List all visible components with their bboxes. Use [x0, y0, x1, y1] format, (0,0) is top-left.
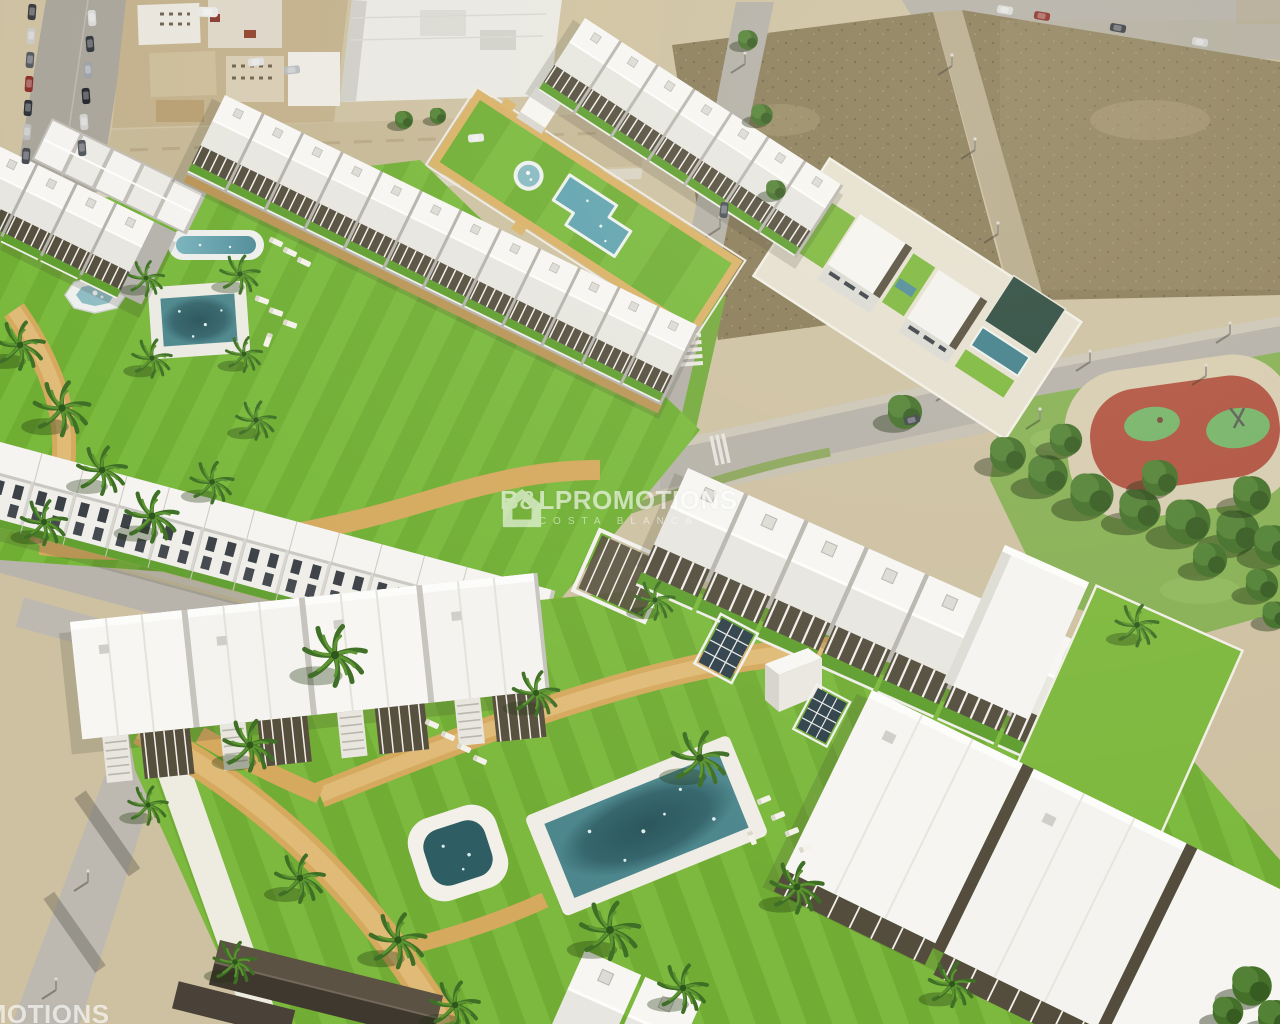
aerial-render-stage: B&LPROMOTIONS COSTA BLANCA B&LPROMOTIONS… [0, 0, 1280, 1024]
sun-glare [0, 0, 1280, 1024]
aerial-render [0, 0, 1280, 1024]
